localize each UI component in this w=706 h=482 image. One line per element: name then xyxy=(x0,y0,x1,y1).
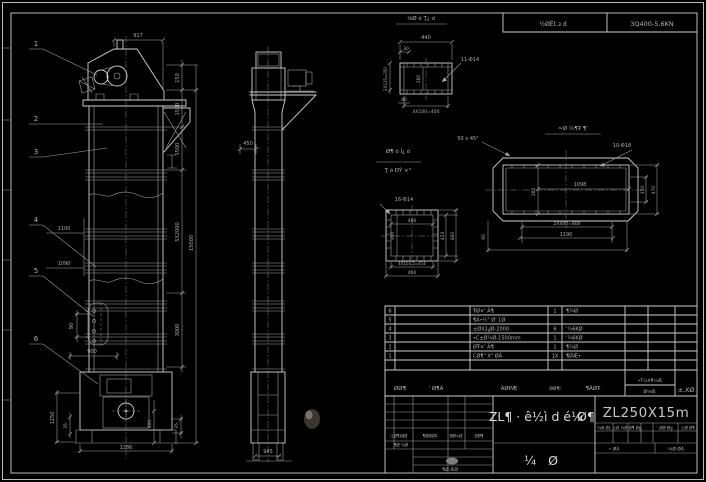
stamp-strip: ½ØЁt.з d 3Q400-5.6KN xyxy=(503,13,697,32)
dim-1500b: 1500 xyxy=(175,143,181,156)
bom-row: 5 ¶Ã•½" Ø' 1Ø xyxy=(388,317,505,324)
stage-label: • ØÃ xyxy=(609,446,621,453)
dim-1100: 1100 xyxy=(58,226,71,232)
bom-mat: ¶¼Ø xyxy=(566,344,578,351)
dim-1098: 1098 xyxy=(574,182,587,188)
bom-no: 5 xyxy=(388,318,391,324)
dim-945: 945 xyxy=(263,449,273,455)
front-view: 917 150 1500 1500 5X2000 3000 15000 1100… xyxy=(29,33,199,460)
flange-label-top: Ø¶ ó Ì¿ ó xyxy=(386,148,411,155)
dim-flange-400: 400 xyxy=(408,218,417,224)
dim-400: 400 xyxy=(147,420,153,429)
dim-2x125: 2X125=250 xyxy=(383,67,388,91)
dim-440: 440 xyxy=(421,35,431,41)
approve-label: ¶Ø ÆØ xyxy=(442,466,458,473)
bom-row: 1 CØ¶" X" ØÃ 1X ¶ØÆ• xyxy=(388,353,581,360)
channel-title: ⅛Ø ó Ţ¿ d xyxy=(407,15,435,22)
bom-mat: '¼6KØ xyxy=(566,326,583,333)
cover-holes-label: 10-Φ18 xyxy=(613,143,631,149)
tb-small-label: ØØ Øg xyxy=(659,426,673,431)
bom-no: 6 xyxy=(388,309,391,315)
flange-label-bottom: Ţ ó ĐÝ ×° xyxy=(384,167,412,174)
dim-4x100: 4X100=400 xyxy=(413,109,440,115)
bom-row: 6 ŦØ×' Ã¶ 1 ¶¼Ø xyxy=(388,308,578,315)
balloon-4: 4 xyxy=(34,216,39,224)
bom-header-cell: ÃØPÆ xyxy=(501,385,518,392)
bom-no: 4 xyxy=(388,327,391,333)
bom-desc: ±ØX2ؼØ-2000 xyxy=(473,326,509,333)
channel-detail: ⅛Ø ó Ţ¿ d 440 30 2X125=250 260 40 4X100=… xyxy=(383,15,479,115)
bucket-chain-detail xyxy=(88,303,108,345)
balloon-1: 1 xyxy=(34,40,38,48)
bom-no: 1 xyxy=(388,354,391,360)
bom-mat: '¼6KØ xyxy=(566,335,583,342)
dim-1190: 1190 xyxy=(560,232,573,238)
dim-flange-460r: 460 xyxy=(450,232,456,241)
model-section: ZL250X15m ¼Ø ØL ±Ø ¼Ø Ø¶ Øg ØØ Øg ±Ø Ø¶ … xyxy=(595,405,697,453)
bom-header-cell: ØØ¶ xyxy=(394,385,406,392)
bom-qty: 1 xyxy=(553,336,556,342)
rev-header: ØØ¶ xyxy=(475,434,484,439)
rev-header: ±Ø¶(ØØ xyxy=(391,434,408,439)
dim-flange-460b: 460 xyxy=(408,270,417,276)
balloon-6: 6 xyxy=(34,335,39,343)
bom-mat: ¶ØÆ• xyxy=(566,353,581,360)
dim-5x2000: 5X2000 xyxy=(175,222,181,241)
dim-382: 382 xyxy=(531,188,537,197)
dim-90: 90 xyxy=(69,323,75,329)
rev-row2: ¶Ø ¼Ø xyxy=(394,443,408,448)
bom-header-cell: ØØ¶l xyxy=(549,385,560,392)
bom-table: 6 ŦØ×' Ã¶ 1 ¶¼Ø 5 ¶Ã•½" Ø' 1Ø 4 ±ØX2ؼØ-2… xyxy=(385,306,697,396)
cover-detail: ≈Ø ½¶Ŧ ¶' 50 x 45° 10-Φ18 1098 382 150 4… xyxy=(457,125,659,252)
bom-desc: ¶Ã•½" Ø' 1Ø xyxy=(473,317,505,324)
dim-2x400: 2X400=800 xyxy=(554,221,581,227)
bom-header-cell: •Ŧ¼X¶¼Æ xyxy=(638,378,663,384)
tb-small-label: ±Ø Ø¶ xyxy=(681,426,695,431)
dim-15000: 15000 xyxy=(189,235,195,251)
dim-1090: 1090 xyxy=(58,261,71,267)
drawing-type-char: ¼ xyxy=(524,453,536,468)
cover-title: ≈Ø ½¶Ŧ ¶' xyxy=(558,125,588,132)
dim-35r: 35 xyxy=(174,423,180,429)
stamp-label: ½ØЁt.з d xyxy=(539,21,567,28)
bom-header-cell: ±,XØ xyxy=(677,386,694,394)
bom-qty: 1 xyxy=(553,345,556,351)
rev-header: ØØ×Ø xyxy=(450,434,463,439)
drawing-name-tail: Ø¶ xyxy=(577,409,595,424)
rev-header: ¶ØØØÃ xyxy=(423,434,438,439)
tb-small-label: Ø¶ Øg xyxy=(629,426,642,431)
dim-917: 917 xyxy=(133,33,143,39)
dim-95: 95 xyxy=(481,234,487,240)
smudge-artifact xyxy=(304,409,320,429)
tb-small-label: ±Ø ¼Ø xyxy=(613,426,628,431)
model-number: ZL250X15m xyxy=(603,405,690,421)
bom-row: 2 ØŦ×' Ã¶ 1 ¶¼Ø xyxy=(388,344,578,351)
drawing-type-char: Ø xyxy=(548,453,558,468)
drawing-name-cell: ZL¶ · ê½ì d é¼ Ø¶ ¼ Ø xyxy=(489,409,595,468)
dim-cover-150: 150 xyxy=(640,186,646,195)
cover-chamfer-label: 50 x 45° xyxy=(457,136,479,142)
dim-flange-390: 390 xyxy=(390,232,396,241)
front-dimensions: 917 150 1500 1500 5X2000 3000 15000 1100… xyxy=(46,33,199,453)
bom-row: 3 •C±Ø¼Ø-1500mm 1 '¼6KØ xyxy=(388,335,582,342)
stamp-value: 3Q400-5.6KN xyxy=(630,20,674,28)
dim-35l: 35 xyxy=(63,423,69,429)
dim-150: 150 xyxy=(175,73,181,83)
flange-detail: Ø¶ ó Ì¿ ó Ţ ó ĐÝ ×° 16-Φ14 400 390 413 4… xyxy=(376,148,458,278)
discharge-chute xyxy=(164,108,190,168)
side-motor xyxy=(286,70,314,91)
dim-260: 260 xyxy=(416,75,422,84)
flange-holes-label: 16-Φ14 xyxy=(395,197,413,203)
bom-desc: CØ¶" X" ØÃ xyxy=(473,353,503,360)
bom-qty: 1 xyxy=(553,309,556,315)
stamp-blob xyxy=(446,458,458,465)
dim-30: 30 xyxy=(403,46,409,52)
dim-470: 470 xyxy=(651,186,657,195)
bom-qty: 1X xyxy=(552,354,559,360)
bom-mat: ¶¼Ø xyxy=(566,308,578,315)
bom-header: ØØ¶ ' Ø¶Ã ÃØPÆ ØØ¶l ¶ÃØŦ •Ŧ¼X¶¼Æ Ø¼Ø, ±,… xyxy=(394,378,695,395)
bom-no: 3 xyxy=(388,336,391,342)
bom-desc: ØŦ×' Ã¶ xyxy=(473,344,494,351)
bom-row: 4 ±ØX2ؼØ-2000 6 '¼6KØ xyxy=(388,326,582,333)
bom-header-cell: ¶ÃØŦ xyxy=(586,385,602,392)
balloon-5: 5 xyxy=(34,267,38,275)
cad-drawing-sheet: ½ØЁt.з d 3Q400-5.6KN xyxy=(0,0,706,482)
dim-flange-413: 413 xyxy=(440,232,446,241)
bom-desc: •C±Ø¼Ø-1500mm xyxy=(473,335,521,342)
stage-label: ¼Ø ØÃ xyxy=(668,446,685,453)
channel-holes-label: 11-Φ14 xyxy=(461,57,479,63)
bom-desc: ŦØ×' Ã¶ xyxy=(472,308,494,315)
title-block: ±Ø¶(ØØ ¶ØØØÃ ØØ×Ø ØØ¶ ¶Ø ¼Ø ¶Ø ÆØ ZL¶ · … xyxy=(385,396,697,473)
dim-450: 450 xyxy=(243,141,253,147)
dim-1250: 1250 xyxy=(50,412,56,425)
balloon-3: 3 xyxy=(34,148,38,156)
part-balloons: 1 2 3 4 5 6 xyxy=(29,40,107,384)
balloon-2: 2 xyxy=(34,115,38,123)
dim-900: 900 xyxy=(87,349,97,355)
tb-small-label: ¼Ø ØL xyxy=(597,426,611,431)
bom-qty: 6 xyxy=(553,327,556,333)
side-boot: 945 xyxy=(246,372,292,461)
bom-header-cell: Ø¼Ø, xyxy=(644,388,657,395)
revision-grid: ±Ø¶(ØØ ¶ØØØÃ ØØ×Ø ØØ¶ ¶Ø ¼Ø ¶Ø ÆØ xyxy=(391,434,484,474)
dim-4x1035: 4X103.5=414 xyxy=(398,261,426,266)
bom-header-cell: ' Ø¶Ã xyxy=(429,385,444,392)
bom-no: 2 xyxy=(388,345,391,351)
dim-3000: 3000 xyxy=(175,324,181,337)
dim-1500a: 1500 xyxy=(175,103,181,116)
drawing-name: ZL¶ · ê½ì d é¼ xyxy=(489,409,583,424)
side-view: 450 945 xyxy=(238,46,316,462)
dim-1286: 1286 xyxy=(120,445,133,451)
